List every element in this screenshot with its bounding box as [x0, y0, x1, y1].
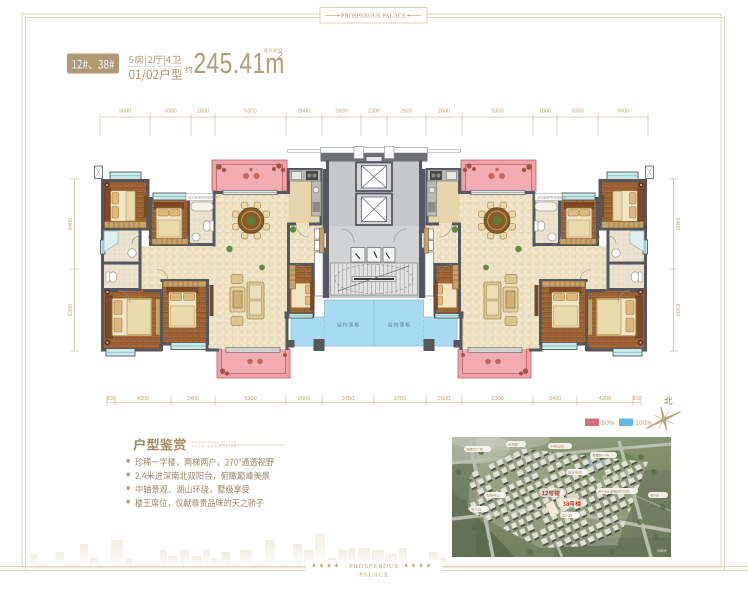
svg-text:800: 800 [632, 396, 641, 402]
svg-text:3000: 3000 [164, 109, 176, 115]
svg-text:2600: 2600 [438, 396, 450, 402]
svg-text:6400: 6400 [674, 218, 680, 230]
svg-text:2600: 2600 [298, 396, 310, 402]
svg-text:4200: 4200 [599, 396, 611, 402]
svg-text:4200: 4200 [137, 396, 149, 402]
svg-text:50%: 50% [602, 420, 615, 427]
svg-text:3750: 3750 [394, 396, 406, 402]
svg-text:3400: 3400 [187, 396, 199, 402]
svg-text:5300: 5300 [491, 396, 503, 402]
svg-text:2: 2 [278, 51, 283, 62]
svg-text:2600: 2600 [335, 109, 347, 115]
svg-text:PALACE: PALACE [359, 572, 389, 579]
svg-text:5300: 5300 [244, 396, 256, 402]
svg-text:5300: 5300 [491, 109, 503, 115]
svg-text:6300: 6300 [674, 304, 680, 316]
svg-text:2300: 2300 [368, 109, 380, 115]
svg-text:3750: 3750 [342, 396, 354, 402]
svg-text:2600: 2600 [438, 109, 450, 115]
svg-text:800: 800 [106, 396, 115, 402]
svg-text:6300: 6300 [68, 304, 74, 316]
svg-text:6400: 6400 [68, 218, 74, 230]
svg-text:2600: 2600 [298, 109, 310, 115]
svg-text:PROSPEROUS: PROSPEROUS [349, 563, 399, 570]
svg-text:PROSPEROUS PALACE: PROSPEROUS PALACE [341, 14, 406, 20]
svg-text:1800: 1800 [539, 109, 551, 115]
svg-text:3000: 3000 [571, 109, 583, 115]
svg-text:1800: 1800 [197, 109, 209, 115]
svg-text:5300: 5300 [244, 109, 256, 115]
svg-text:3600: 3600 [617, 109, 629, 115]
svg-text:245.41m: 245.41m [194, 49, 285, 80]
svg-text:3600: 3600 [119, 109, 131, 115]
svg-text:2600: 2600 [400, 109, 412, 115]
svg-text:3400: 3400 [549, 396, 561, 402]
